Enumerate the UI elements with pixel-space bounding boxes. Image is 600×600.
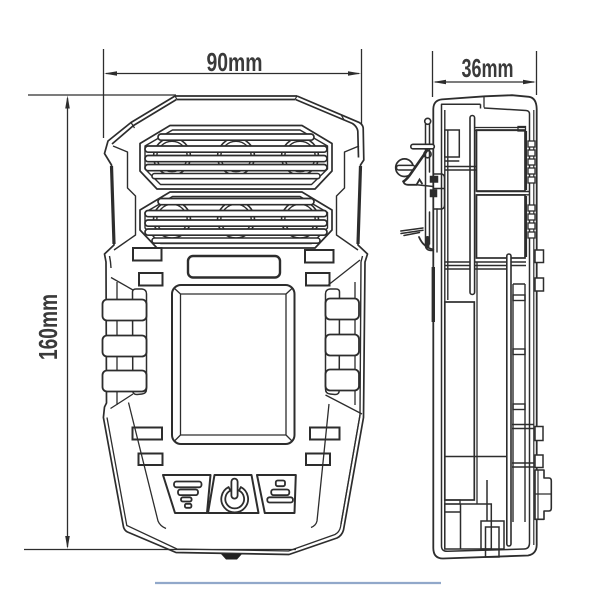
svg-text:90mm: 90mm [207,47,263,77]
svg-text:36mm: 36mm [462,53,514,83]
svg-text:160mm: 160mm [33,294,63,360]
